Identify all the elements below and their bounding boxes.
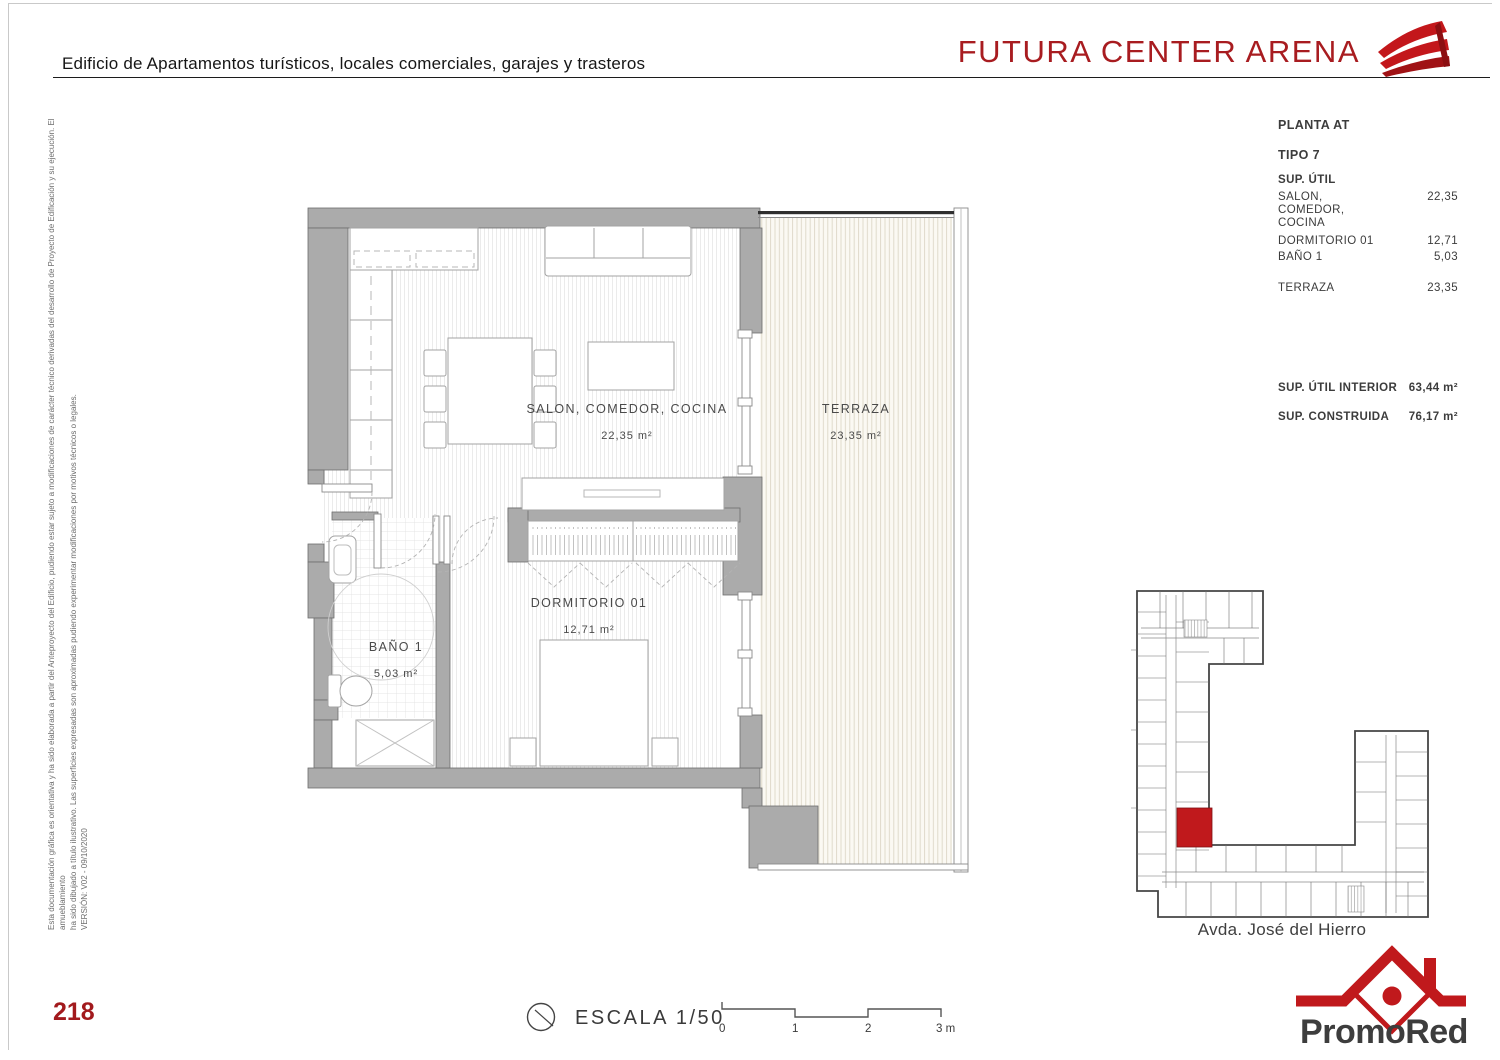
bath-door-leaf <box>374 514 381 568</box>
toilet-bowl <box>340 676 372 706</box>
nightstand <box>510 738 536 766</box>
page-number: 218 <box>53 998 95 1027</box>
kitchen-appliance <box>416 251 474 267</box>
dining-table <box>448 338 532 444</box>
north-symbol <box>528 1004 555 1031</box>
wall-top <box>308 208 760 228</box>
brochure-page: { "header": { "subtitle": "Edificio de A… <box>0 0 1500 1060</box>
salon-name: SALON, COMEDOR, COCINA <box>527 402 728 416</box>
nightstand <box>652 738 678 766</box>
highlighted-unit <box>1177 808 1212 847</box>
floor-plan: SALON, COMEDOR, COCINA 22,35 m² TERRAZA … <box>308 208 968 872</box>
coffee-table <box>588 342 674 390</box>
terrace-glass-rail <box>758 211 954 214</box>
bano-area: 5,03 m² <box>374 668 418 680</box>
bano-name: BAÑO 1 <box>369 640 423 654</box>
promored-logo: PromoRed <box>1296 953 1468 1051</box>
dormitorio-name: DORMITORIO 01 <box>531 596 648 610</box>
scale-tick-2: 2 <box>865 1023 871 1035</box>
scale-tick-labels: 0 1 2 3 m <box>719 1023 955 1035</box>
key-plan-stairs <box>1348 886 1364 912</box>
drawings-layer: SALON, COMEDOR, COCINA 22,35 m² TERRAZA … <box>0 0 1500 1060</box>
scale-tick-3: 3 m <box>936 1023 955 1035</box>
salon-area: 22,35 m² <box>601 430 652 442</box>
dormitorio-area: 12,71 m² <box>563 624 614 636</box>
wall-left <box>308 228 348 470</box>
scale-ruler <box>722 1002 941 1017</box>
terrace-wall-block <box>749 806 818 868</box>
wall-bottom <box>308 768 760 788</box>
wall-hall-dorm <box>436 562 450 768</box>
futura-logo-icon <box>1378 21 1450 77</box>
street-caption: Avda. José del Hierro <box>1132 920 1432 940</box>
scale-label: ESCALA 1/50 <box>575 1007 725 1030</box>
key-plan-stairs <box>1184 620 1207 637</box>
promored-wordmark: PromoRed <box>1300 1013 1468 1051</box>
logo-dot <box>1383 987 1402 1006</box>
bed <box>540 640 648 766</box>
toilet <box>328 675 341 707</box>
terraza-area: 23,35 m² <box>830 430 881 442</box>
scale-tick-1: 1 <box>792 1023 798 1035</box>
key-plan-outline <box>1137 591 1428 917</box>
terraza-floor <box>760 218 952 864</box>
terraza-name: TERRAZA <box>822 402 890 416</box>
key-plan <box>1131 591 1428 917</box>
sofa <box>545 226 691 276</box>
entrance-door-leaf <box>322 484 372 492</box>
kitchen-appliance <box>354 251 410 267</box>
